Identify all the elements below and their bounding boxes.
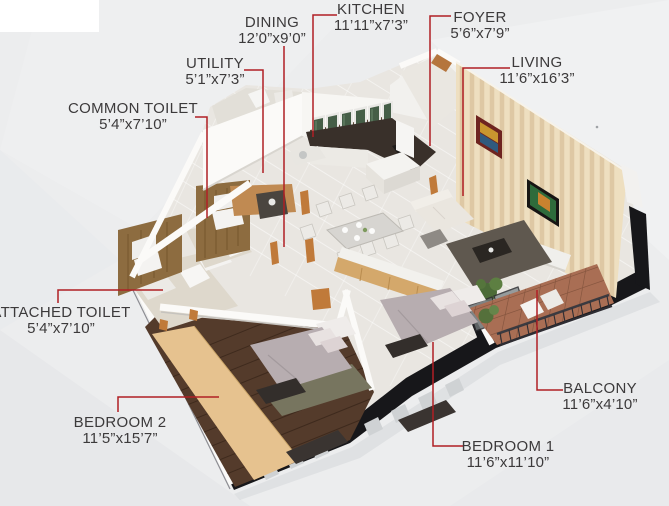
speck <box>596 126 599 129</box>
room-dims: 12’0”x9’0” <box>238 31 306 47</box>
label-bedroom-2: BEDROOM 2 11’5”x15’7” <box>74 415 167 447</box>
room-dims: 11’5”x15’7” <box>74 431 167 447</box>
room-name: FOYER <box>450 10 509 26</box>
label-living: LIVING 11’6”x16’3” <box>499 55 574 87</box>
room-dims: 11’6”x11’10” <box>462 455 555 471</box>
room-dims: 5’4”x7’10” <box>68 117 198 133</box>
label-balcony: BALCONY 11’6”x4’10” <box>562 381 637 413</box>
room-name: UTILITY <box>185 56 244 72</box>
room-dims: 11’11”x7’3” <box>334 18 408 34</box>
room-name: BALCONY <box>562 381 637 397</box>
room-dims: 11’6”x4’10” <box>562 397 637 413</box>
room-dims: 5’1”x7’3” <box>185 72 244 88</box>
room-name: LIVING <box>499 55 574 71</box>
white-corner-patch <box>0 0 99 32</box>
room-name: KITCHEN <box>334 2 408 18</box>
room-dims: 5’6”x7’9” <box>450 26 509 42</box>
room-name: BEDROOM 2 <box>74 415 167 431</box>
label-attached-toilet: ATTACHED TOILET 5’4”x7’10” <box>0 305 131 337</box>
label-utility: UTILITY 5’1”x7’3” <box>185 56 244 88</box>
label-dining: DINING 12’0”x9’0” <box>238 15 306 47</box>
room-name: DINING <box>238 15 306 31</box>
room-dims: 11’6”x16’3” <box>499 71 574 87</box>
label-common-toilet: COMMON TOILET 5’4”x7’10” <box>68 101 198 133</box>
room-dims: 5’4”x7’10” <box>0 321 131 337</box>
label-bedroom-1: BEDROOM 1 11’6”x11’10” <box>462 439 555 471</box>
label-kitchen: KITCHEN 11’11”x7’3” <box>334 2 408 34</box>
label-foyer: FOYER 5’6”x7’9” <box>450 10 509 42</box>
room-name: COMMON TOILET <box>68 101 198 117</box>
room-name: ATTACHED TOILET <box>0 305 131 321</box>
floor-plan-figure: DINING 12’0”x9’0” KITCHEN 11’11”x7’3” FO… <box>0 0 669 506</box>
room-name: BEDROOM 1 <box>462 439 555 455</box>
